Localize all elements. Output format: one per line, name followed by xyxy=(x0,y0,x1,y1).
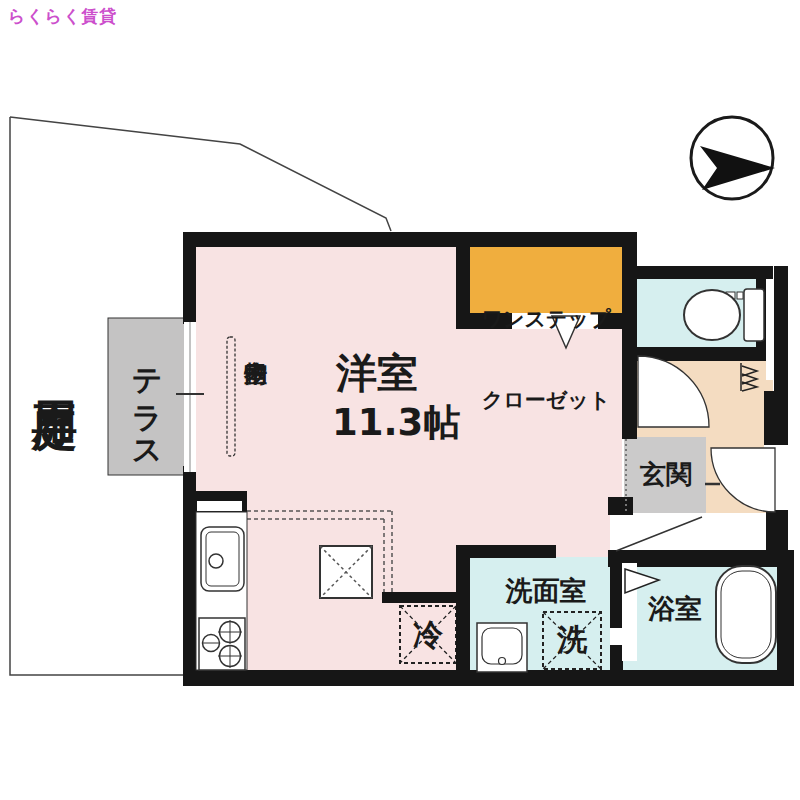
site-logo: らくらく賃貸 xyxy=(8,5,118,28)
toilet-tank xyxy=(744,289,764,341)
toilet-bowl xyxy=(684,290,740,340)
closet-label-line2: クローゼット xyxy=(470,387,622,414)
wall-segment xyxy=(764,391,788,445)
room-label: 洋室 xyxy=(336,351,418,396)
closet-label: ワンステップ クローゼット xyxy=(470,252,622,441)
wall-segment xyxy=(183,232,636,247)
toilet-icon xyxy=(684,289,764,341)
bath-door-gap xyxy=(610,628,623,645)
pipe-space-gap xyxy=(766,280,774,380)
site-boundary-top xyxy=(10,117,391,231)
wall-segment xyxy=(610,560,623,686)
washroom-label: 洗面室 xyxy=(487,576,605,606)
kitchen-slot-gap xyxy=(197,501,242,511)
garden-label: 専用庭 xyxy=(30,362,81,562)
kitchen-x-marker xyxy=(320,546,372,598)
vanity-drain xyxy=(499,658,506,665)
bathtub-outer xyxy=(716,566,776,663)
bathroom-label: 浴室 xyxy=(639,594,711,624)
wall-segment xyxy=(777,550,794,686)
north-arrow-icon xyxy=(691,117,775,199)
fridge-label: 冷 xyxy=(400,618,456,651)
wall-segment xyxy=(622,355,637,439)
kitchen-unit xyxy=(196,512,247,670)
drying-label: 室内物干 xyxy=(243,342,268,462)
wall-segment xyxy=(608,497,633,515)
kitchen-sink-icon xyxy=(201,527,244,591)
terrace-label: テラス xyxy=(131,349,164,459)
washer-label: 洗 xyxy=(543,623,601,656)
wall-segment xyxy=(766,510,788,552)
toilet-flush xyxy=(737,292,743,299)
wall-segment xyxy=(456,545,556,558)
wall-segment xyxy=(622,232,637,363)
stove-burners-icon xyxy=(199,618,245,670)
floorplan-drawing xyxy=(0,0,800,800)
wall-segment xyxy=(456,545,470,686)
wall-segment xyxy=(183,232,196,324)
wall-segment xyxy=(774,266,788,398)
bathtub-icon xyxy=(716,566,776,663)
room-size-label: 11.3帖 xyxy=(332,403,460,444)
floorplan-page: らくらく賃貸 専用庭 テラス 室内物干 洋室 11.3帖 ワンステップ クローゼ… xyxy=(0,0,800,800)
sink-drain xyxy=(209,554,223,568)
wall-segment xyxy=(382,592,464,603)
closet-label-line1: ワンステップ xyxy=(470,306,622,333)
wash-basin-icon xyxy=(477,623,527,672)
entrance-label: 玄関 xyxy=(626,460,706,489)
wall-segment xyxy=(183,518,196,686)
wall-segment xyxy=(625,266,773,279)
